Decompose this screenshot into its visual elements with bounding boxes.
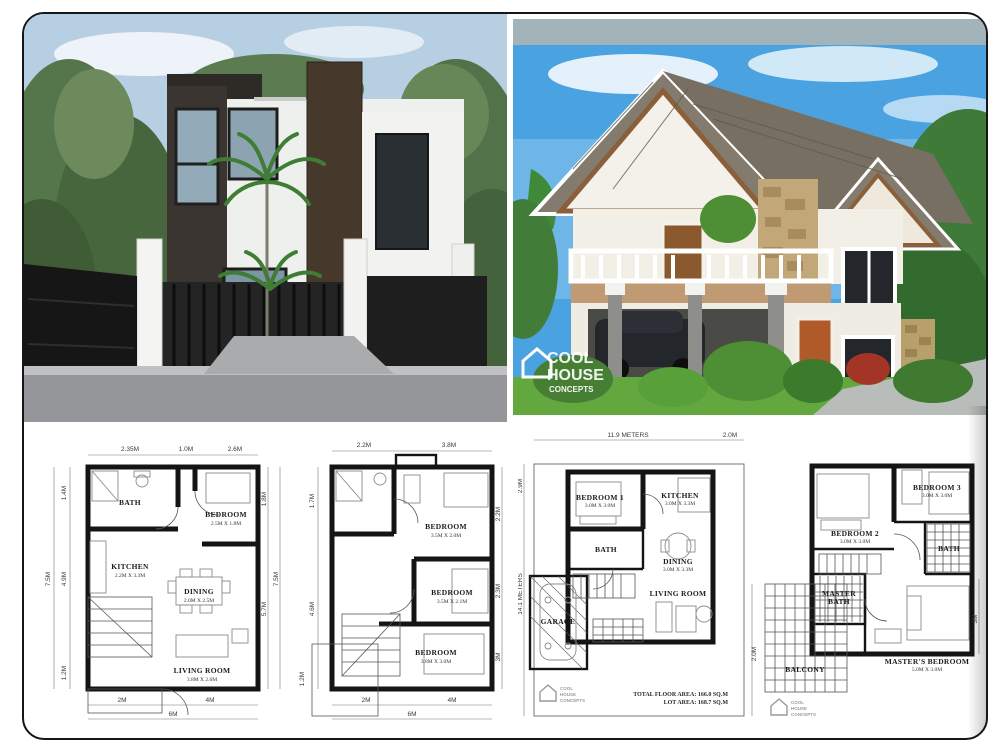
svg-text:6M: 6M xyxy=(168,711,177,718)
room-living: LIVING ROOM xyxy=(174,666,231,675)
cloud xyxy=(284,26,424,58)
watermark-line2: HOUSE xyxy=(547,367,604,384)
svg-text:HOUSE: HOUSE xyxy=(791,706,807,711)
right-house-render-art: COOL HOUSE CONCEPTS xyxy=(513,19,986,415)
plan4-logo: COOL HOUSE CONCEPTS xyxy=(771,699,816,717)
room-garage: GARAGE xyxy=(541,617,576,626)
svg-text:7.5M: 7.5M xyxy=(45,572,52,586)
svg-text:2.6M: 2.6M xyxy=(228,446,242,453)
room-bath: BATH xyxy=(938,544,960,553)
svg-text:4.6M: 4.6M xyxy=(309,602,316,616)
svg-text:1.8M: 1.8M xyxy=(261,492,268,506)
room-bath: BATH xyxy=(119,498,141,507)
svg-text:6M: 6M xyxy=(407,711,416,718)
window-glass xyxy=(176,109,218,204)
plan1-walls xyxy=(88,467,258,689)
svg-text:2.3M: 2.3M xyxy=(495,584,502,598)
room-bedroom1: BEDROOM xyxy=(425,522,467,531)
sheet-edge-shadow xyxy=(968,406,986,736)
svg-text:4M: 4M xyxy=(447,697,456,704)
room-bedroom3: BEDROOM 3 xyxy=(913,483,961,492)
cool-house-logo-icon xyxy=(771,699,787,715)
svg-text:HOUSE: HOUSE xyxy=(560,692,576,697)
total-floor-area: TOTAL FLOOR AREA: 166.0 SQ.M xyxy=(633,692,728,698)
svg-text:11.9 METERS: 11.9 METERS xyxy=(607,432,649,439)
room-masterbath-line2: BATH xyxy=(828,597,850,606)
svg-text:3.8M X 2.6M: 3.8M X 2.6M xyxy=(187,677,217,683)
plan3-logo: COOL HOUSE CONCEPTS xyxy=(540,685,585,703)
room-dining: DINING xyxy=(184,587,214,596)
svg-text:COOL: COOL xyxy=(560,686,573,691)
svg-text:1.0M: 1.0M xyxy=(179,446,193,453)
svg-text:1.7M: 1.7M xyxy=(309,494,316,508)
watermark-line3: CONCEPTS xyxy=(549,385,594,394)
svg-text:2.9M: 2.9M xyxy=(518,479,524,493)
watermark-line1: COOL xyxy=(547,350,593,367)
floor-plan-3: BEDROOM 1 3.0M X 3.0M KITCHEN 3.0M X 3.3… xyxy=(518,424,760,736)
plan2-dim-labels: 2.2M 3.8M 1.7M 4.6M 1.2M 2.2M 2.3M 3M 2M… xyxy=(299,442,502,718)
cloud xyxy=(748,46,938,82)
svg-text:5.0M X 3.0M: 5.0M X 3.0M xyxy=(912,667,942,673)
room-bedroom1: BEDROOM 1 xyxy=(576,493,624,502)
svg-text:7.5M: 7.5M xyxy=(273,572,280,586)
balcony-plant xyxy=(700,195,756,243)
svg-text:2M: 2M xyxy=(361,697,370,704)
svg-text:2.2M X 3.3M: 2.2M X 3.3M xyxy=(115,573,145,579)
room-bedroom2: BEDROOM 2 xyxy=(831,529,879,538)
svg-text:3.0M X 3.3M: 3.0M X 3.3M xyxy=(665,501,695,507)
plan4-stairs xyxy=(819,554,881,574)
plan2-stairs xyxy=(342,614,400,676)
room-kitchen: KITCHEN xyxy=(111,562,149,571)
street xyxy=(24,374,507,422)
svg-text:3.5M X 2.1M: 3.5M X 2.1M xyxy=(437,599,467,605)
lot-area: LOT AREA: 168.7 SQ.M xyxy=(664,700,729,706)
svg-text:2.0M: 2.0M xyxy=(723,432,737,439)
plan1-room-labels: BATH BEDROOM 2.5M X 1.8M KITCHEN 2.2M X … xyxy=(111,498,247,683)
svg-text:2.5M X 1.8M: 2.5M X 1.8M xyxy=(211,521,241,527)
svg-text:2.0M X 2.5M: 2.0M X 2.5M xyxy=(184,598,214,604)
svg-text:COOL: COOL xyxy=(791,700,804,705)
svg-text:14.1 METERS: 14.1 METERS xyxy=(518,573,524,615)
top-gray-band xyxy=(513,19,986,45)
svg-text:2.2M: 2.2M xyxy=(495,507,502,521)
svg-text:5.7M: 5.7M xyxy=(261,602,268,616)
plan1-dim-labels: 2.35M 1.0M 2.6M 1.4M 7.5M 4.9M 1.2M 1.8M… xyxy=(45,446,280,718)
svg-text:3.8M: 3.8M xyxy=(442,442,456,449)
svg-text:3.0M X 3.0M: 3.0M X 3.0M xyxy=(840,539,870,545)
svg-text:1.4M: 1.4M xyxy=(61,486,68,500)
room-bedroom2: BEDROOM xyxy=(431,588,473,597)
svg-text:CONCEPTS: CONCEPTS xyxy=(560,698,585,703)
plan2-walls xyxy=(332,455,492,689)
room-kitchen: KITCHEN xyxy=(661,491,699,500)
cool-house-logo-icon xyxy=(540,685,556,701)
room-bedroom: BEDROOM xyxy=(205,510,247,519)
room-bath: BATH xyxy=(595,545,617,554)
plan1-stairs xyxy=(88,597,152,657)
svg-text:4M: 4M xyxy=(205,697,214,704)
svg-text:3.0M X 3.3M: 3.0M X 3.3M xyxy=(663,567,693,573)
svg-text:3M: 3M xyxy=(495,652,502,661)
left-house-render-photo xyxy=(24,14,507,422)
window-dark xyxy=(376,134,428,249)
plan2-dimlines xyxy=(318,451,502,719)
room-dining: DINING xyxy=(663,557,693,566)
floor-plan-4: BEDROOM 2 3.0M X 3.0M BEDROOM 3 3.0M X 3… xyxy=(757,434,984,732)
room-bedroom3: BEDROOM xyxy=(415,648,457,657)
svg-text:CONCEPTS: CONCEPTS xyxy=(791,712,816,717)
left-house-render-art xyxy=(24,14,507,422)
svg-text:3.0M X 3.0M: 3.0M X 3.0M xyxy=(585,503,615,509)
room-living: LIVING ROOM xyxy=(650,589,707,598)
room-master-bedroom: MASTER'S BEDROOM xyxy=(885,657,970,666)
svg-text:2.35M: 2.35M xyxy=(121,446,139,453)
svg-text:3.8M X 3.0M: 3.8M X 3.0M xyxy=(421,659,451,665)
svg-text:4.9M: 4.9M xyxy=(61,572,68,586)
house-design-collage: COOL HOUSE CONCEPTS xyxy=(22,12,988,740)
svg-text:2.2M: 2.2M xyxy=(357,442,371,449)
svg-text:3.0M X 3.0M: 3.0M X 3.0M xyxy=(922,493,952,499)
room-balcony: BALCONY xyxy=(785,665,825,674)
plan3-notes: TOTAL FLOOR AREA: 166.0 SQ.M LOT AREA: 1… xyxy=(633,692,728,706)
svg-text:3.5M X 2.0M: 3.5M X 2.0M xyxy=(431,533,461,539)
plan3-lot xyxy=(524,440,752,716)
svg-text:2M: 2M xyxy=(117,697,126,704)
floor-plan-2: BEDROOM 3.5M X 2.0M BEDROOM 3.5M X 2.1M … xyxy=(284,429,514,731)
floor-plan-1: BATH BEDROOM 2.5M X 1.8M KITCHEN 2.2M X … xyxy=(30,429,282,731)
red-shrub xyxy=(846,353,890,385)
svg-text:1.2M: 1.2M xyxy=(299,672,306,686)
svg-text:1.2M: 1.2M xyxy=(61,666,68,680)
plan3-porch-tiles xyxy=(593,619,643,642)
right-house-render-photo: COOL HOUSE CONCEPTS xyxy=(513,19,986,415)
